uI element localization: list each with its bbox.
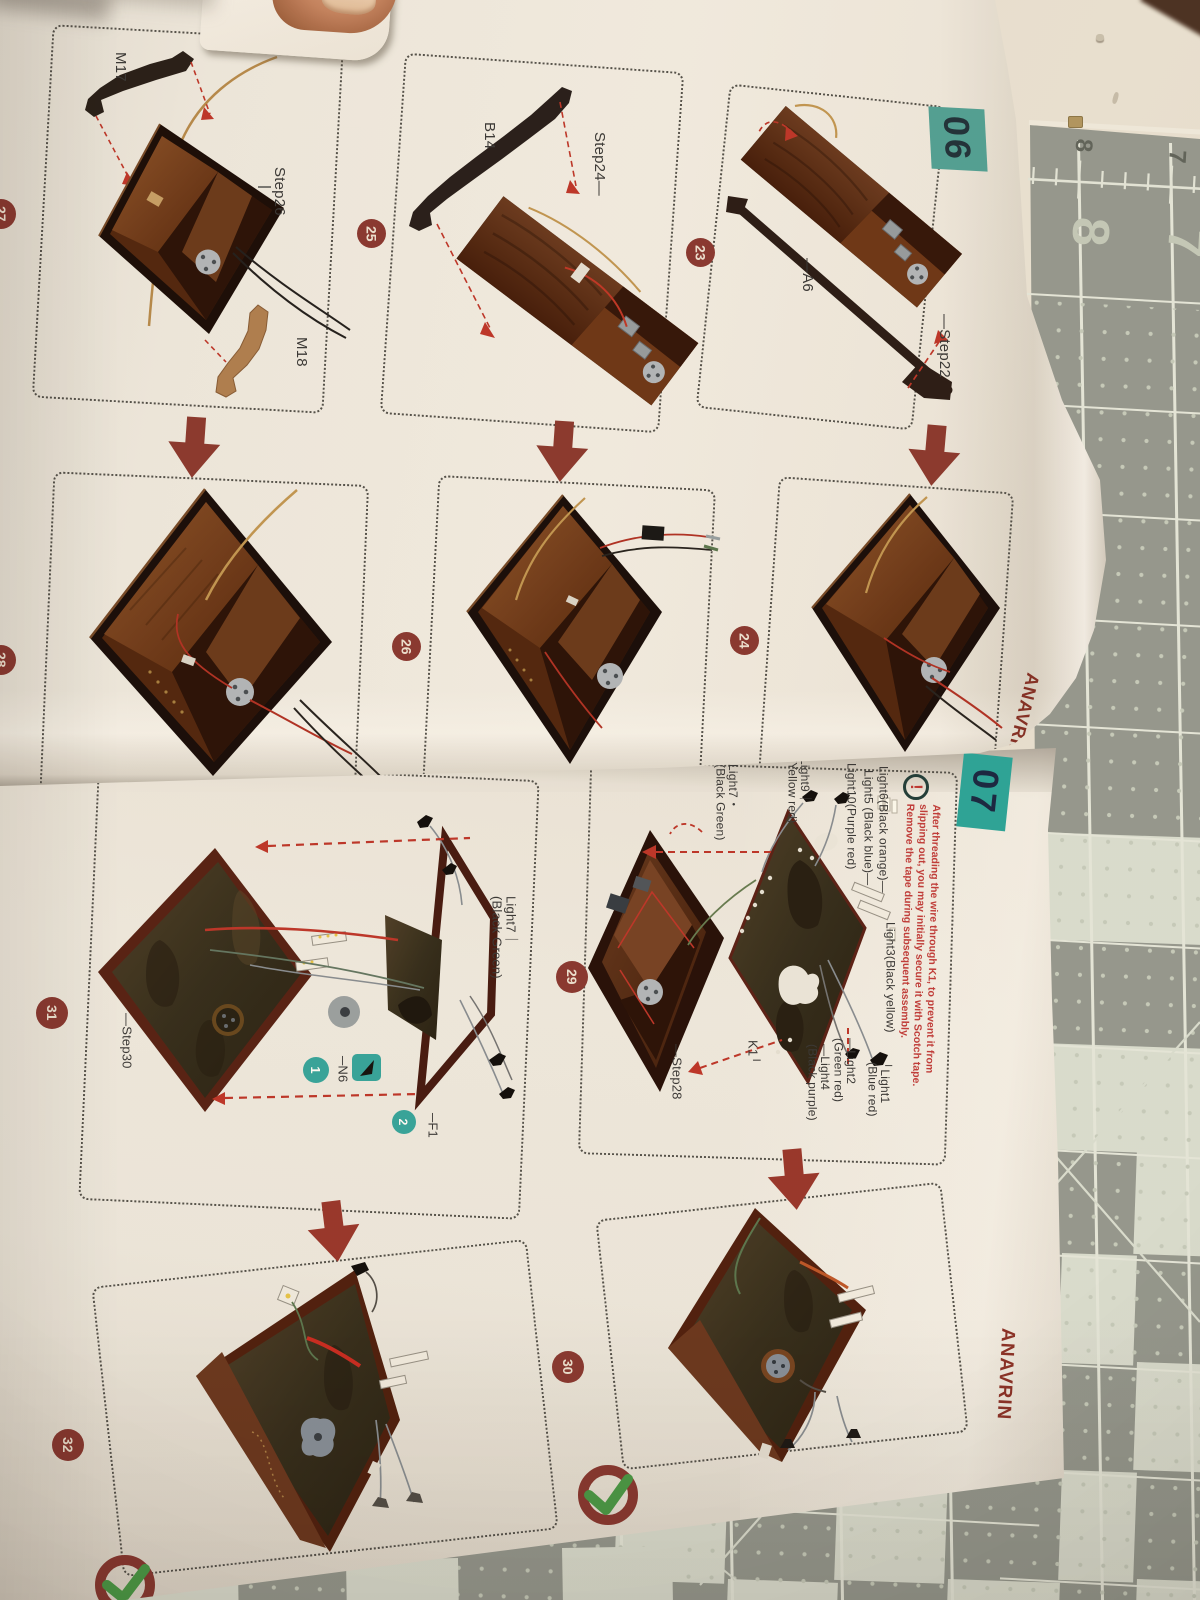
svg-text:2: 2: [396, 1119, 410, 1126]
svg-text:1: 1: [308, 1066, 323, 1073]
svg-text:7: 7: [1156, 227, 1200, 259]
svg-text:8: 8: [1060, 216, 1120, 248]
svg-text:8: 8: [1070, 138, 1098, 153]
svg-text:7: 7: [1163, 149, 1191, 164]
